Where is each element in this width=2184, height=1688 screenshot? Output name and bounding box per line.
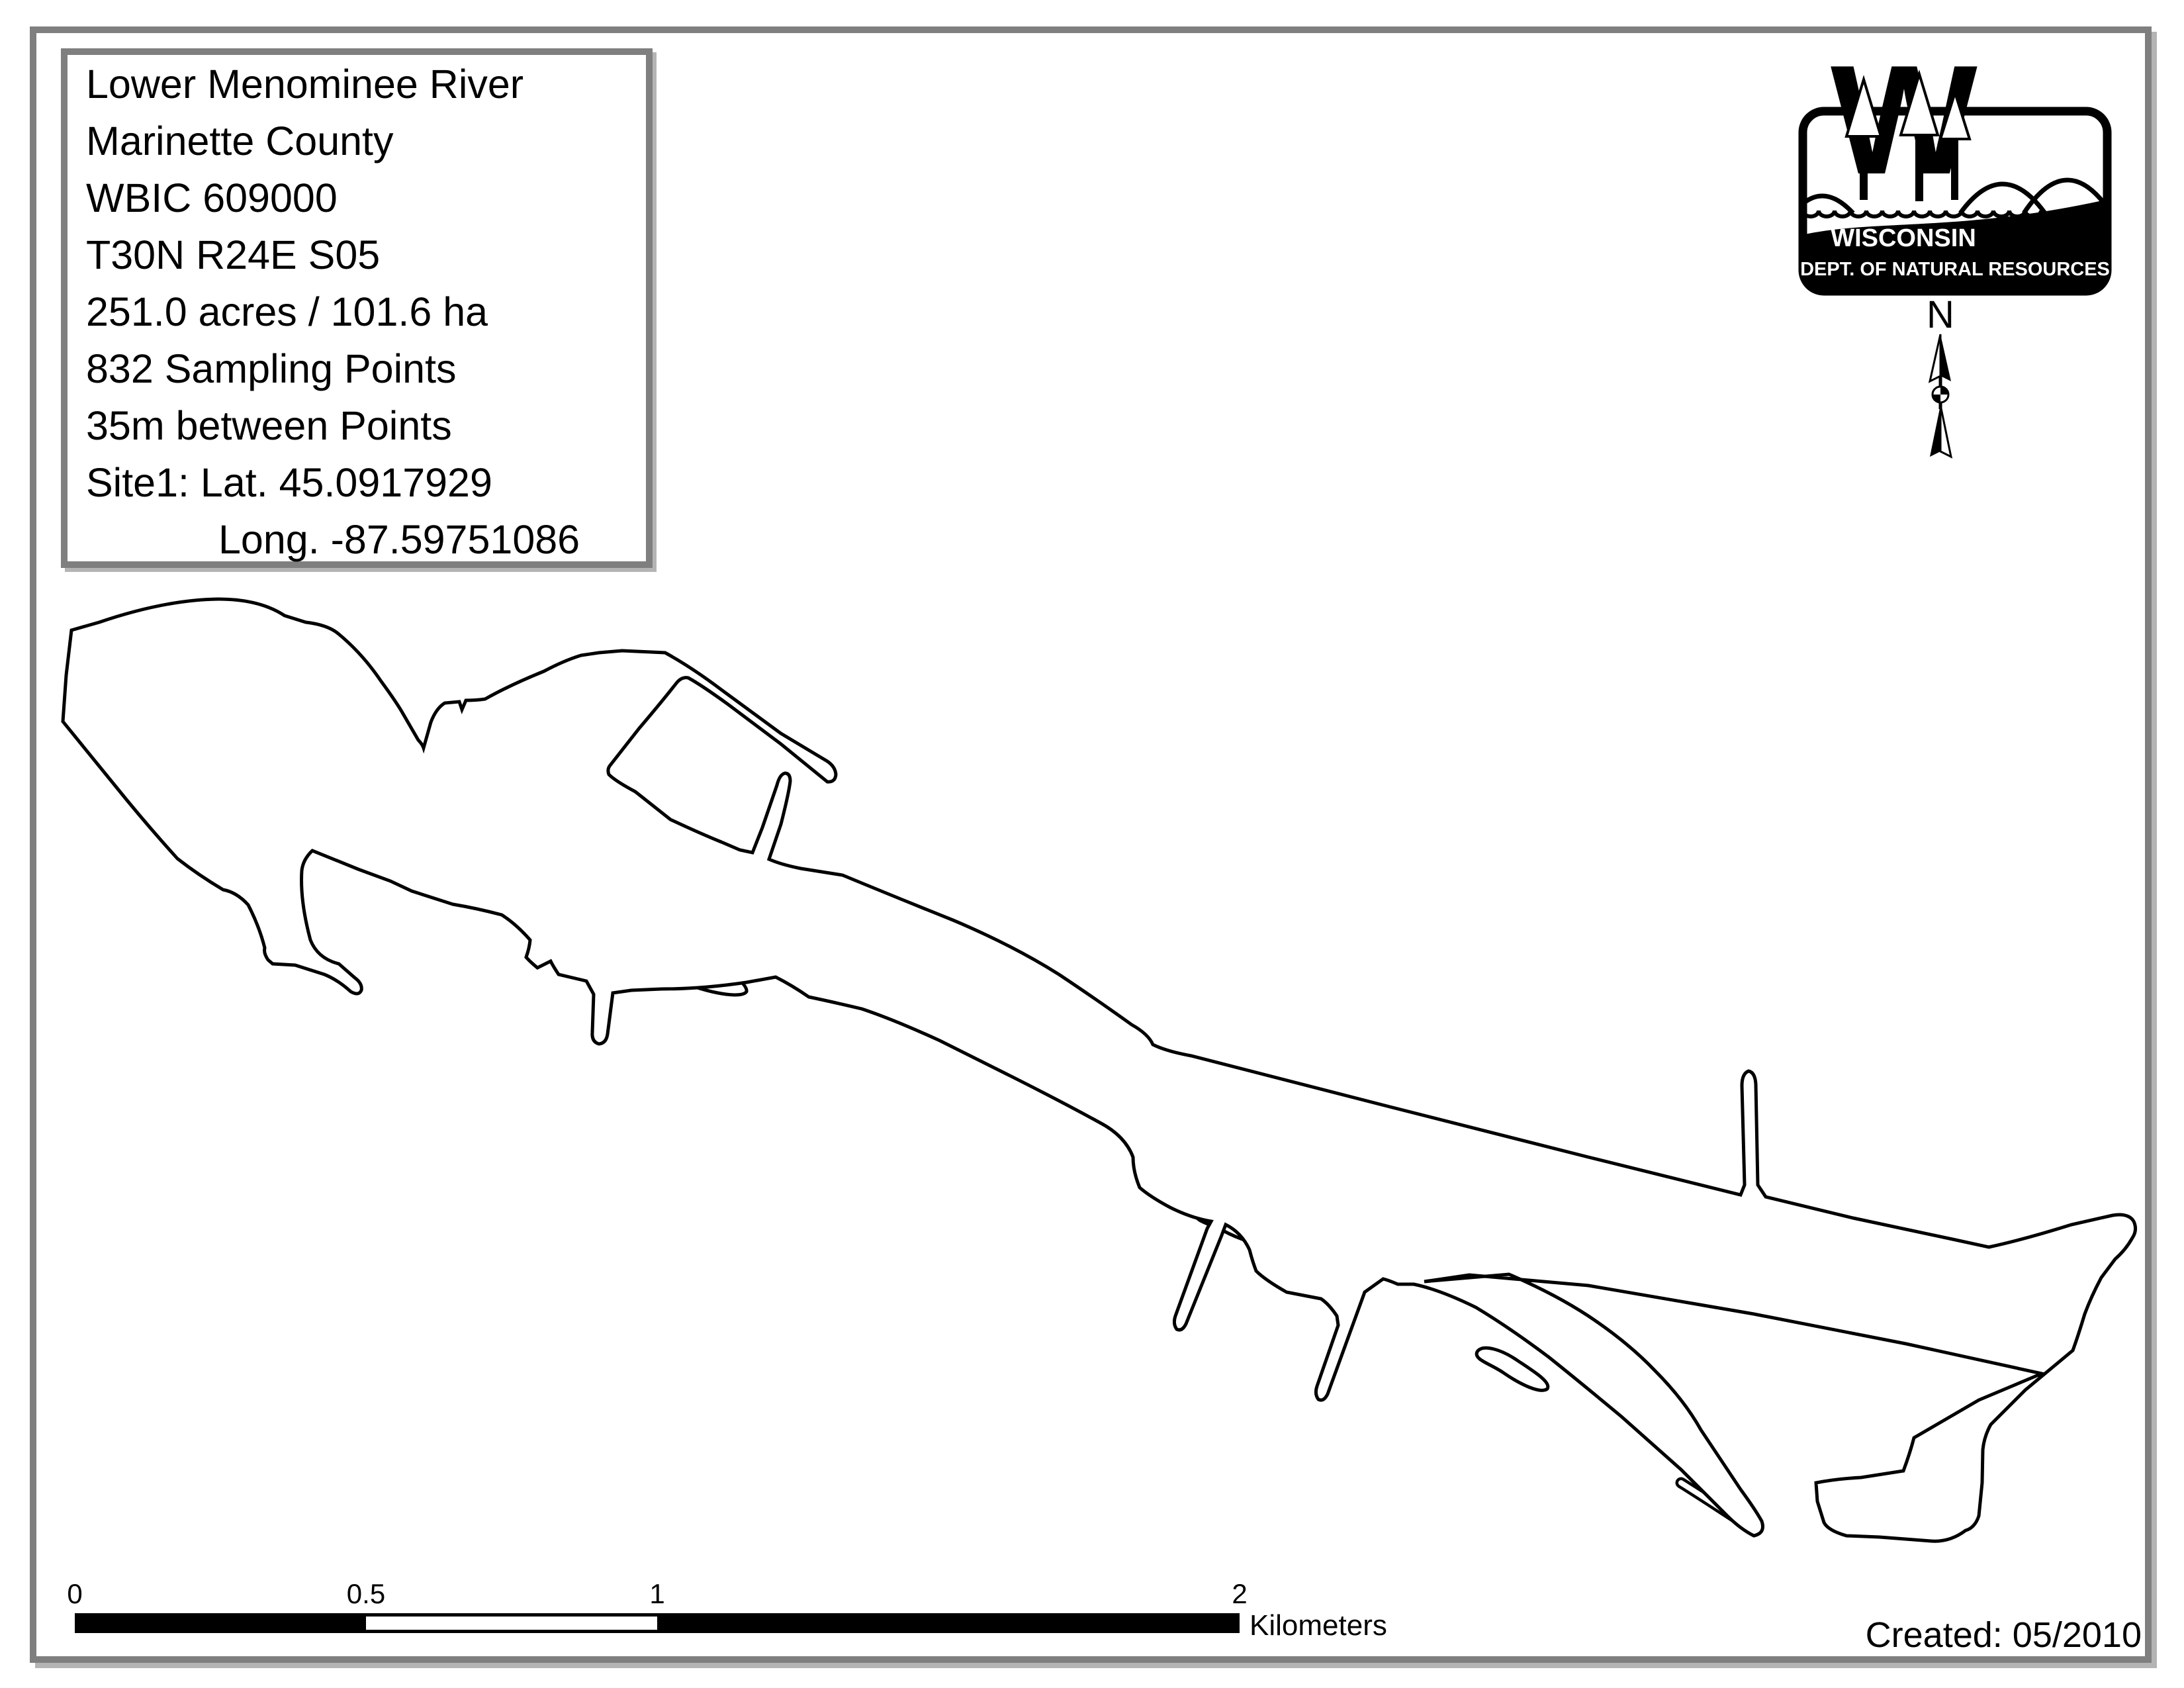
map-document: Lower Menominee River Marinette County W… [0, 0, 2184, 1688]
scale-tick-2: 2 [1232, 1578, 1247, 1609]
logo-dept-label: DEPT. OF NATURAL RESOURCES [1800, 259, 2110, 280]
info-line-spacing: 35m between Points [86, 403, 452, 448]
info-box: Lower Menominee River Marinette County W… [64, 52, 653, 569]
scale-tick-1: 1 [649, 1578, 664, 1609]
info-line-lat: Site1: Lat. 45.0917929 [86, 460, 492, 505]
info-line-county: Marinette County [86, 118, 394, 164]
north-label: N [1927, 293, 1954, 336]
info-line-long: Long. -87.59751086 [218, 517, 580, 562]
info-line-township: T30N R24E S05 [86, 232, 380, 277]
info-line-area: 251.0 acres / 101.6 ha [86, 289, 488, 334]
scale-tick-05: 0.5 [347, 1578, 385, 1609]
created-date-label: Created: 05/2010 [1866, 1615, 2142, 1655]
scale-tick-0: 0 [67, 1578, 82, 1609]
info-line-points: 832 Sampling Points [86, 346, 457, 391]
logo-wisconsin-label: WISCONSIN [1831, 224, 1976, 252]
scale-bar-white-segment [366, 1617, 657, 1630]
info-line-wbic: WBIC 609000 [86, 175, 338, 220]
scale-unit-label: Kilometers [1250, 1609, 1387, 1642]
info-line-title: Lower Menominee River [86, 62, 523, 107]
